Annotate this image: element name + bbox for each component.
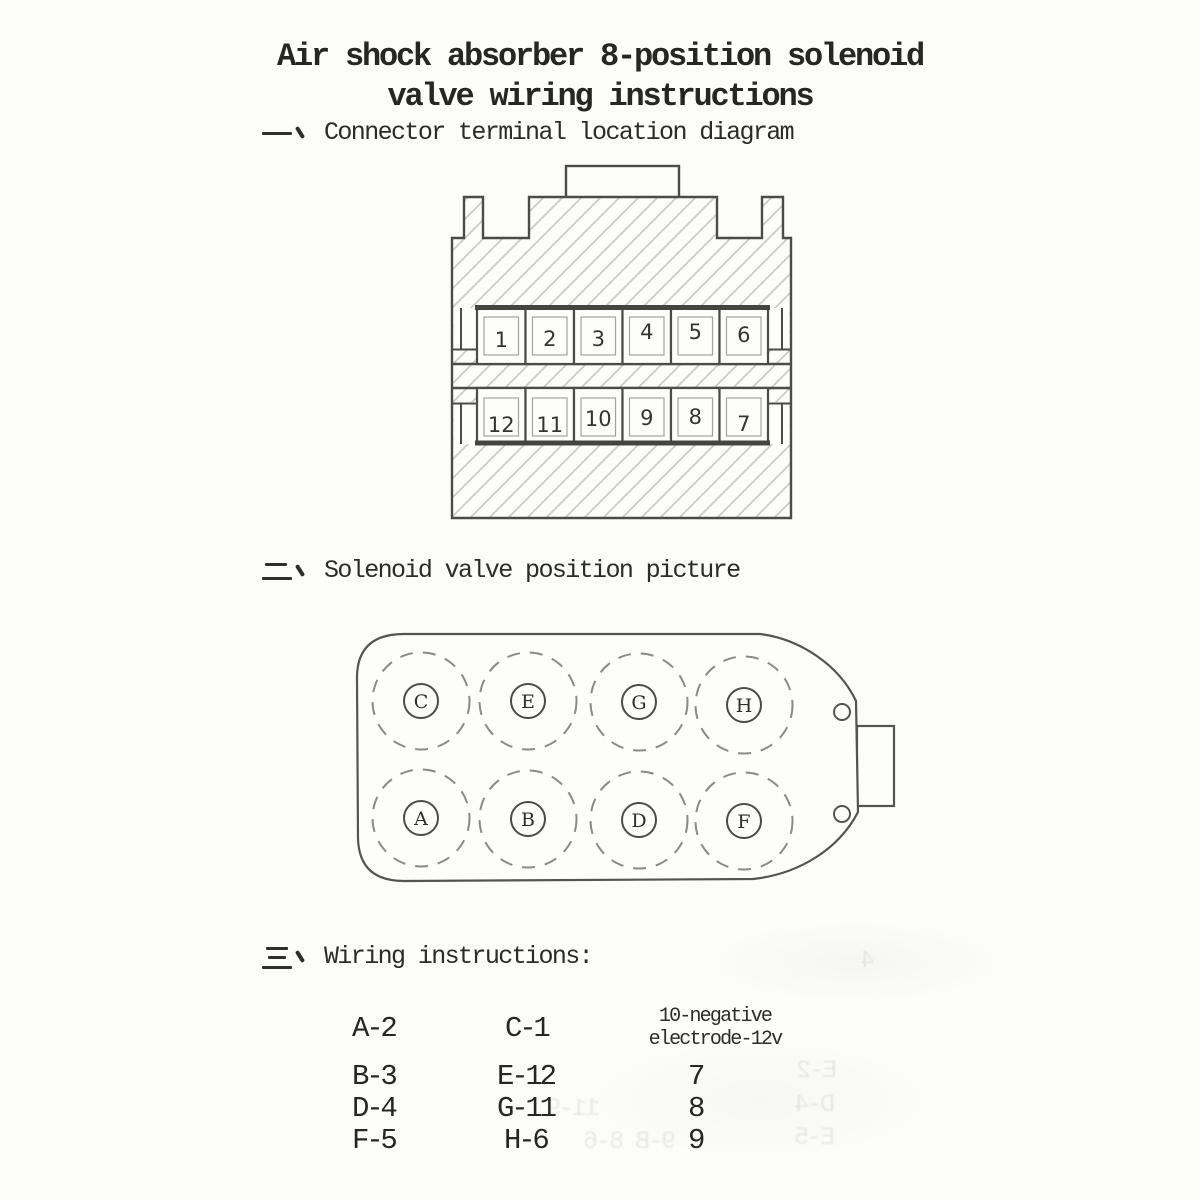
ghost-text: E-2	[798, 1056, 837, 1085]
instruction-sheet: Air shock absorber 8-position solenoid v…	[0, 0, 1200, 1200]
ghost-text: 11-9	[548, 1094, 600, 1123]
print-bleed-through: 4E-2D-4E-511-99-B 8-6	[0, 0, 1200, 1200]
ghost-text: D-4	[796, 1090, 835, 1119]
ghost-text: 4	[862, 946, 875, 975]
ghost-text: 9-B 8-6	[585, 1127, 676, 1156]
ghost-text: E-5	[796, 1123, 835, 1152]
